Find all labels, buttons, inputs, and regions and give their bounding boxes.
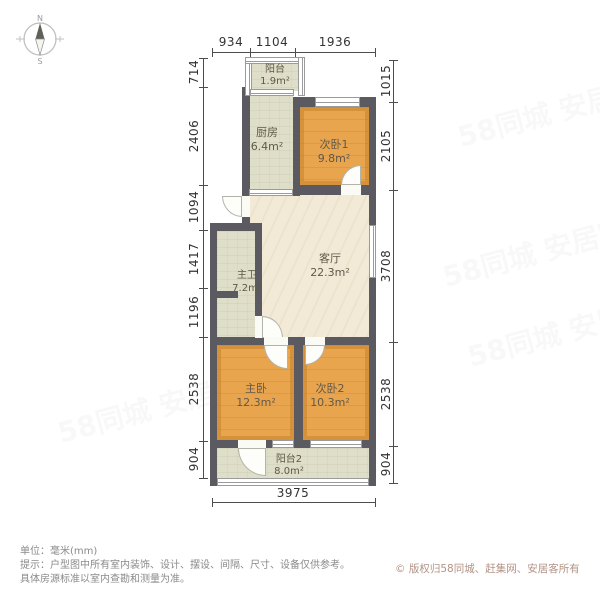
dim-line-top (212, 52, 376, 53)
dim-label-top: 934 (219, 35, 243, 49)
entry-door-arc (222, 196, 242, 217)
balcony-2-door-gap (238, 440, 266, 448)
bedroom-1-window (315, 97, 360, 107)
dim-label-left: 1094 (187, 191, 201, 224)
wall (288, 337, 305, 345)
wall (210, 440, 238, 448)
room-area: 9.8m² (318, 152, 351, 166)
room-name: 主卧 (236, 382, 276, 396)
room-label-balcony-1: 阳台 1.9m² (260, 64, 290, 88)
tip-note-line-2: 具体房源标准以室内查勘和测量为准。 (20, 573, 190, 587)
north-arrow (36, 23, 45, 39)
room-area: 12.3m² (236, 396, 276, 410)
balcony-2-window (217, 478, 369, 486)
master-balcony-window (272, 440, 294, 448)
master-door-gap (264, 337, 288, 345)
dim-label-left: 2406 (187, 120, 201, 153)
dim-line-right (393, 60, 394, 483)
room-area: 6.4m² (251, 140, 284, 154)
dim-line-bottom (212, 502, 376, 503)
dim-tick (199, 87, 208, 88)
room-area: 10.3m² (310, 396, 350, 410)
dim-tick (199, 185, 208, 186)
room-name: 主卫 (232, 269, 262, 282)
wall (294, 440, 310, 448)
dim-label-left: 2538 (187, 373, 201, 406)
dim-line-left (203, 58, 204, 478)
dim-tick (389, 60, 398, 61)
unit-note: 单位：毫米(mm) (20, 545, 97, 559)
wall (361, 185, 376, 195)
compass: N S (12, 10, 68, 66)
dim-label-right: 904 (379, 452, 393, 476)
room-label-bathroom: 主卫 7.2m² (232, 269, 262, 295)
dim-label-left: 714 (187, 60, 201, 84)
dim-tick (199, 230, 208, 231)
dim-tick (375, 48, 376, 57)
room-name: 客厅 (310, 252, 350, 266)
balcony-1-window-top (245, 57, 305, 64)
dim-tick (389, 102, 398, 103)
kitchen-door-line (249, 189, 293, 196)
dim-tick (389, 446, 398, 447)
dim-tick (250, 48, 251, 57)
room-label-bedroom-2: 次卧2 10.3m² (310, 382, 350, 410)
dim-tick (212, 48, 213, 57)
tip-note-line-1: 提示：户型图中所有室内装饰、设计、摆设、间隔、尺寸、设备仅供参考。 (20, 559, 350, 573)
wall (369, 97, 376, 486)
dim-tick (295, 48, 296, 57)
room-area: 8.0m² (274, 466, 304, 478)
room-name: 厨房 (251, 126, 284, 140)
dim-tick (199, 441, 208, 442)
dim-label-left: 904 (187, 447, 201, 471)
dim-tick (389, 190, 398, 191)
room-label-kitchen: 厨房 6.4m² (251, 126, 284, 154)
dim-label-right: 2538 (379, 378, 393, 411)
room-label-master: 主卧 12.3m² (236, 382, 276, 410)
wall (242, 87, 250, 196)
dim-tick (389, 342, 398, 343)
watermark: 58同城 安居客 (463, 288, 600, 375)
dim-label-top: 1104 (256, 35, 289, 49)
compass-north-label: N (37, 14, 43, 23)
room-name: 阳台 (260, 64, 290, 76)
wall (210, 337, 264, 345)
entry-door-gap (242, 196, 250, 217)
balcony-1-window-right (298, 57, 305, 96)
room-name: 次卧2 (310, 382, 350, 396)
wall (362, 440, 376, 448)
room-name: 阳台2 (274, 454, 304, 466)
dim-label-right: 1015 (379, 65, 393, 98)
room-name: 次卧1 (318, 138, 351, 152)
bedroom-2-door-gap (305, 337, 325, 345)
dim-label-right: 3708 (379, 250, 393, 283)
dim-label-left: 1196 (187, 296, 201, 329)
dim-tick (212, 498, 213, 507)
compass-south-label: S (37, 57, 42, 66)
kitchen-balcony-window (250, 89, 294, 96)
dim-tick (199, 288, 208, 289)
wall (325, 337, 376, 345)
dim-label-bottom: 3975 (277, 486, 310, 500)
dim-tick (199, 478, 208, 479)
living-room-window (369, 225, 376, 278)
watermark: 58同城 安居客 (453, 68, 600, 155)
room-area: 1.9m² (260, 76, 290, 88)
room-area: 7.2m² (232, 282, 262, 295)
dim-label-top: 1936 (319, 35, 352, 49)
room-area: 22.3m² (310, 266, 350, 280)
copyright-note: © 版权归58同城、赶集网、安居客所有 (395, 561, 580, 576)
dim-tick (199, 337, 208, 338)
room-label-balcony-2: 阳台2 8.0m² (274, 454, 304, 478)
room-label-bedroom-1: 次卧1 9.8m² (318, 138, 351, 166)
floorplan-canvas: N S 58同城 安居客 58同城 安居客 58同城 安居客 58同城 安居客 (0, 0, 600, 600)
wall (300, 185, 341, 195)
room-label-living: 客厅 22.3m² (310, 252, 350, 280)
bathroom-door-gap (255, 316, 262, 338)
wall (294, 345, 303, 440)
dim-tick (375, 498, 376, 507)
wall (293, 97, 300, 196)
dim-tick (389, 483, 398, 484)
bedroom-2-balcony-window (310, 440, 362, 448)
bedroom-1-door-gap (341, 185, 361, 195)
dim-label-right: 2105 (379, 130, 393, 163)
watermark: 58同城 安居客 (438, 208, 600, 295)
dim-label-left: 1417 (187, 243, 201, 276)
